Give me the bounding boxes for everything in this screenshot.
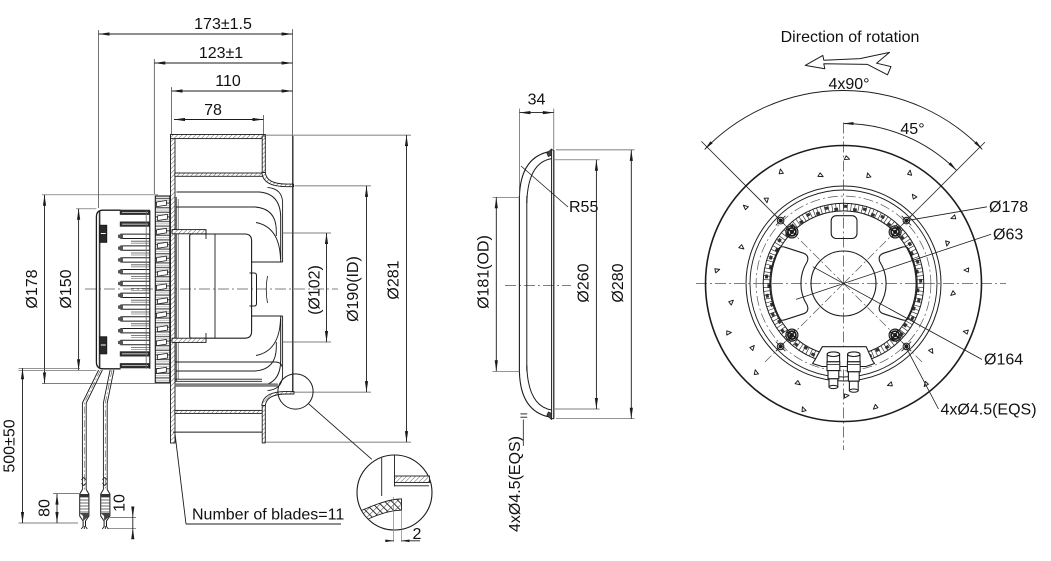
svg-text:500±50: 500±50: [2, 419, 19, 472]
svg-text:Ø178: Ø178: [989, 199, 1028, 216]
svg-text:Number of blades=11: Number of blades=11: [192, 507, 344, 524]
svg-text:Ø260: Ø260: [575, 263, 592, 302]
svg-text:10: 10: [112, 494, 129, 512]
svg-text:45°: 45°: [900, 121, 924, 138]
svg-text:(Ø102): (Ø102): [307, 265, 324, 315]
svg-text:Ø164: Ø164: [984, 352, 1023, 369]
svg-text:Ø178: Ø178: [24, 269, 41, 308]
svg-text:34: 34: [528, 92, 546, 109]
svg-text:4xØ4.5(EQS): 4xØ4.5(EQS): [941, 402, 1037, 419]
svg-text:Ø281: Ø281: [386, 260, 403, 299]
svg-text:80: 80: [37, 499, 54, 517]
svg-text:R55: R55: [569, 199, 598, 216]
svg-text:4xØ4.5(EQS): 4xØ4.5(EQS): [507, 436, 524, 532]
svg-text:4x90°: 4x90°: [828, 76, 869, 93]
svg-text:Ø150: Ø150: [58, 269, 75, 308]
svg-text:2: 2: [413, 526, 422, 543]
svg-text:Ø190(ID): Ø190(ID): [345, 256, 362, 322]
svg-text:78: 78: [204, 102, 222, 119]
svg-text:173±1.5: 173±1.5: [194, 16, 252, 33]
svg-text:Ø63: Ø63: [993, 227, 1023, 244]
svg-text:Ø181(OD): Ø181(OD): [475, 235, 492, 309]
svg-text:110: 110: [215, 73, 241, 90]
svg-text:Direction of rotation: Direction of rotation: [781, 29, 920, 46]
svg-text:Ø280: Ø280: [610, 263, 627, 302]
svg-text:123±1: 123±1: [199, 45, 243, 62]
